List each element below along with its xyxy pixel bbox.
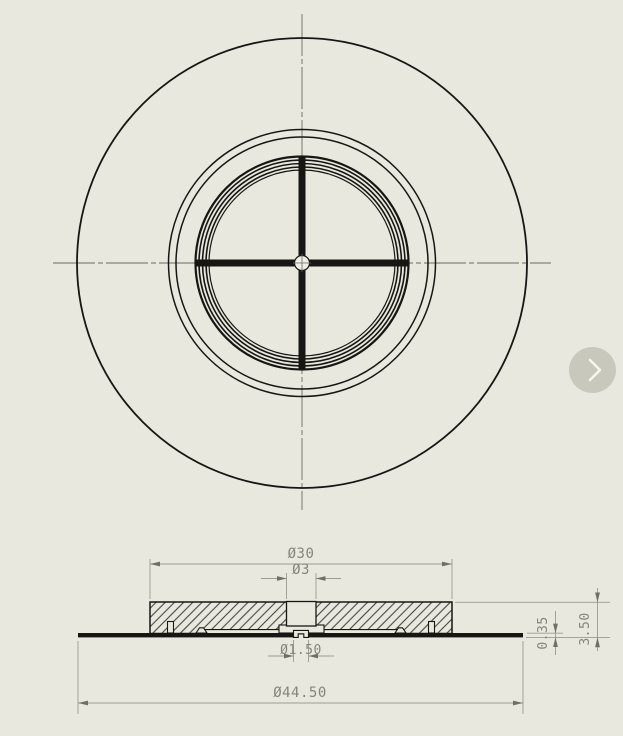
center-hole-crosshair bbox=[293, 254, 311, 272]
center-top-hole bbox=[287, 602, 317, 627]
svg-text:0.35: 0.35 bbox=[536, 616, 551, 649]
dimension-top-hole-diameter: Ø3 bbox=[261, 562, 341, 599]
drawing-viewport: Ø30 Ø3 Ø1.50 bbox=[0, 0, 623, 736]
section-view bbox=[78, 602, 523, 638]
svg-text:Ø3: Ø3 bbox=[292, 562, 310, 578]
chevron-right-icon bbox=[570, 347, 616, 393]
svg-text:Ø30: Ø30 bbox=[288, 546, 315, 562]
dimension-center-hole-diameter: Ø1.50 bbox=[268, 640, 334, 662]
next-image-button[interactable] bbox=[569, 347, 616, 393]
center-bottom-notch bbox=[294, 630, 309, 637]
svg-text:Ø44.50: Ø44.50 bbox=[273, 685, 327, 701]
top-view bbox=[53, 14, 551, 510]
right-slot bbox=[429, 622, 435, 634]
dimension-plate-thickness: 0.35 bbox=[527, 611, 563, 655]
svg-text:3.50: 3.50 bbox=[578, 612, 593, 645]
engineering-drawing: Ø30 Ø3 Ø1.50 bbox=[0, 0, 623, 736]
svg-text:Ø1.50: Ø1.50 bbox=[280, 643, 322, 658]
dimension-boss-height: 3.50 bbox=[455, 588, 610, 651]
left-slot bbox=[168, 622, 174, 634]
